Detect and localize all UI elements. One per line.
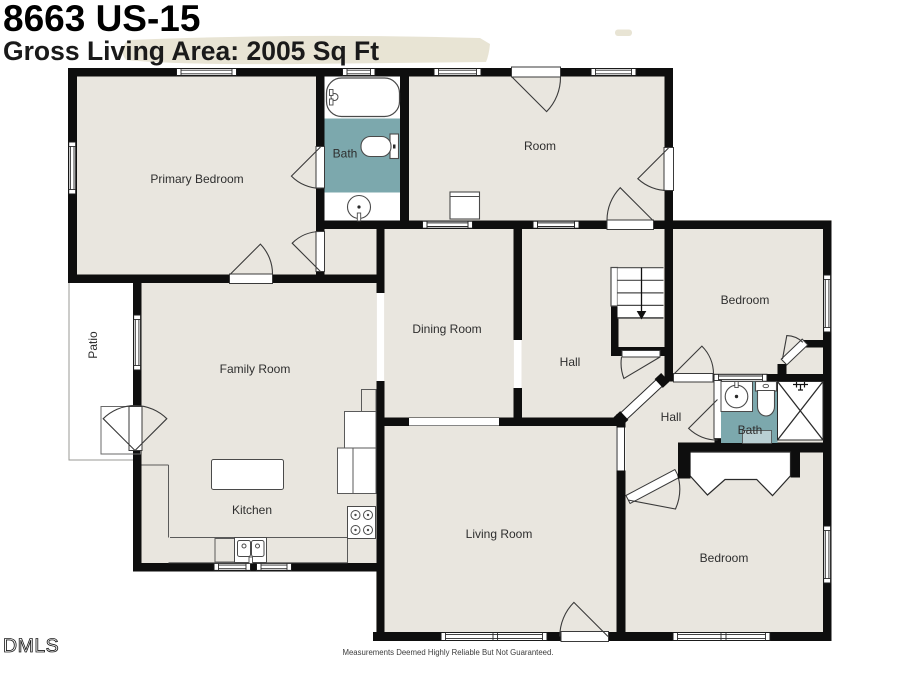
svg-text:Bath: Bath bbox=[738, 423, 763, 437]
svg-text:Kitchen: Kitchen bbox=[232, 503, 272, 517]
svg-text:Primary Bedroom: Primary Bedroom bbox=[150, 172, 243, 186]
svg-text:8663 US-15: 8663 US-15 bbox=[3, 0, 200, 39]
svg-text:DMLS: DMLS bbox=[3, 635, 59, 657]
svg-text:Measurements Deemed Highly Rel: Measurements Deemed Highly Reliable But … bbox=[342, 648, 553, 657]
svg-text:Hall: Hall bbox=[661, 410, 682, 424]
svg-text:Bedroom: Bedroom bbox=[700, 551, 749, 565]
svg-text:Room: Room bbox=[524, 139, 556, 153]
svg-text:Dining Room: Dining Room bbox=[412, 322, 481, 336]
svg-text:Bath: Bath bbox=[333, 147, 358, 161]
svg-text:Living Room: Living Room bbox=[466, 527, 533, 541]
svg-text:Gross Living Area: 2005 Sq Ft: Gross Living Area: 2005 Sq Ft bbox=[3, 36, 379, 66]
svg-text:Hall: Hall bbox=[560, 355, 581, 369]
svg-text:Family Room: Family Room bbox=[220, 362, 291, 376]
svg-text:Bedroom: Bedroom bbox=[721, 293, 770, 307]
svg-text:Patio: Patio bbox=[86, 331, 100, 359]
